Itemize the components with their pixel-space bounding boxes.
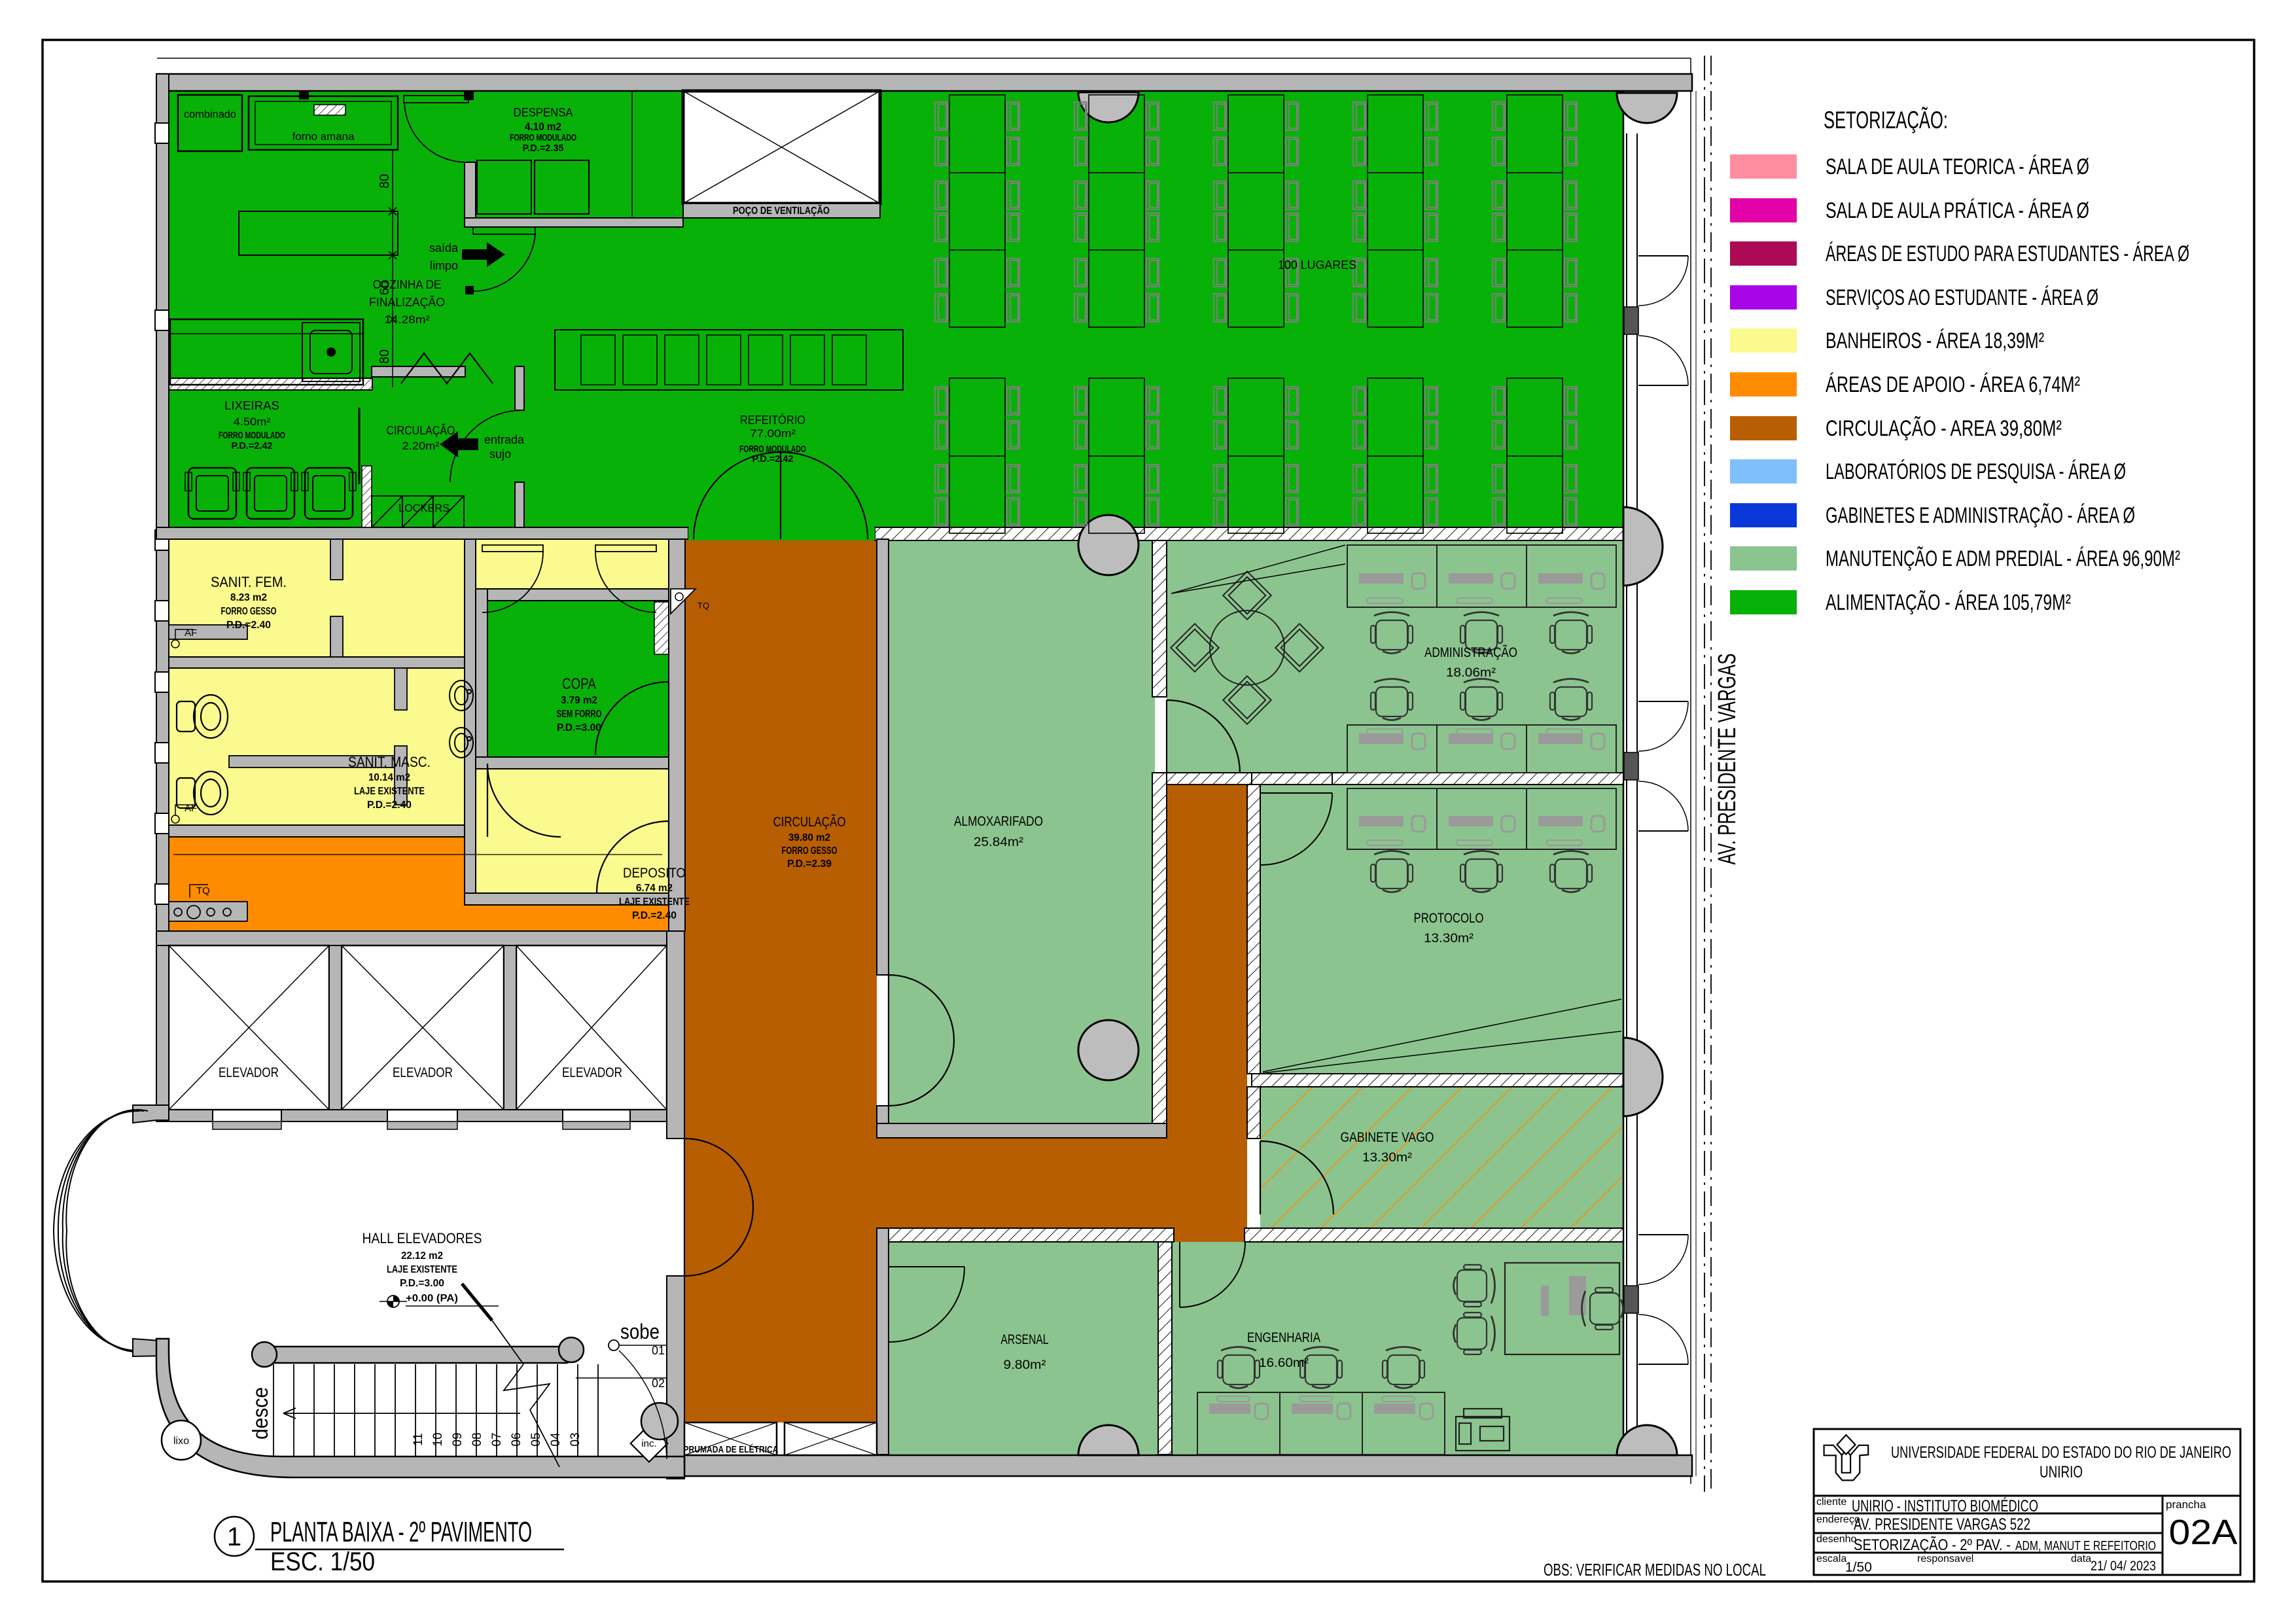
svg-text:SALA DE AULA TEORICA - ÁREA Ø: SALA DE AULA TEORICA - ÁREA Ø <box>1826 154 2089 179</box>
svg-text:10: 10 <box>431 1432 445 1446</box>
svg-text:inc.: inc. <box>641 1438 656 1449</box>
svg-text:ESC. 1/50: ESC. 1/50 <box>270 1547 375 1576</box>
svg-text:ALIMENTAÇÃO - ÁREA 105,79M²: ALIMENTAÇÃO - ÁREA 105,79M² <box>1826 590 2071 615</box>
svg-text:P.D.=3.00: P.D.=3.00 <box>400 1278 444 1289</box>
svg-text:80: 80 <box>378 349 392 364</box>
svg-text:80: 80 <box>378 174 392 188</box>
svg-text:13.30m²: 13.30m² <box>1424 932 1474 945</box>
svg-text:COZINHA DE: COZINHA DE <box>373 278 442 291</box>
svg-text:OBS: VERIFICAR MEDIDAS NO LOCA: OBS: VERIFICAR MEDIDAS NO LOCAL <box>1544 1560 1766 1580</box>
svg-text:lixo: lixo <box>173 1436 189 1447</box>
svg-text:SEM FORRO: SEM FORRO <box>557 709 602 720</box>
svg-text:77.00m²: 77.00m² <box>750 427 796 440</box>
svg-text:4.50m²: 4.50m² <box>234 415 271 428</box>
svg-text:LABORATÓRIOS DE PESQUISA - ÁRE: LABORATÓRIOS DE PESQUISA - ÁREA Ø <box>1826 459 2126 484</box>
svg-text:ADMINISTRAÇÃO: ADMINISTRAÇÃO <box>1424 644 1517 660</box>
svg-text:02A: 02A <box>2169 1513 2238 1552</box>
svg-text:SETORIZAÇÃO:: SETORIZAÇÃO: <box>1824 107 1948 133</box>
svg-text:P.D.=2.42: P.D.=2.42 <box>232 440 273 451</box>
svg-text:FORRO MODULADO: FORRO MODULADO <box>510 132 576 143</box>
svg-text:FORRO MODULADO: FORRO MODULADO <box>219 430 285 441</box>
svg-text:ELEVADOR: ELEVADOR <box>219 1065 279 1080</box>
svg-text:UNIVERSIDADE FEDERAL DO EST: UNIVERSIDADE FEDERAL DO ESTADO DO RIO DE… <box>1891 1443 2231 1462</box>
svg-text:10.14 m2: 10.14 m2 <box>368 772 410 783</box>
svg-text:HALL ELEVADORES: HALL ELEVADORES <box>362 1230 482 1246</box>
svg-text:CIRCULAÇÃO: CIRCULAÇÃO <box>773 814 846 830</box>
svg-text:LOCKERS: LOCKERS <box>398 502 450 514</box>
svg-text:desce: desce <box>248 1387 272 1439</box>
svg-text:ADM, MANUT E REFEITORIO: ADM, MANUT E REFEITORIO <box>2015 1539 2156 1553</box>
svg-text:SANIT. FEM.: SANIT. FEM. <box>211 574 287 590</box>
svg-text:ELEVADOR: ELEVADOR <box>562 1065 622 1080</box>
svg-text:P.D.=3.00: P.D.=3.00 <box>557 722 601 733</box>
svg-text:9.80m²: 9.80m² <box>1004 1358 1046 1372</box>
svg-text:SALA DE AULA PRÁTICA - ÁREA Ø: SALA DE AULA PRÁTICA - ÁREA Ø <box>1826 198 2089 223</box>
svg-text:responsavel: responsavel <box>1917 1553 1973 1564</box>
svg-text:6.74 m2: 6.74 m2 <box>636 883 673 894</box>
svg-text:P.D.=2.40: P.D.=2.40 <box>226 620 271 631</box>
svg-text:07: 07 <box>490 1432 504 1446</box>
svg-text:03: 03 <box>569 1432 582 1446</box>
svg-text:AF: AF <box>185 803 197 814</box>
svg-text:25.84m²: 25.84m² <box>974 836 1023 849</box>
svg-text:LAJE EXISTENTE: LAJE EXISTENTE <box>354 786 425 797</box>
svg-text:SERVIÇOS AO ESTUDANTE - ÁREA Ø: SERVIÇOS AO ESTUDANTE - ÁREA Ø <box>1826 285 2098 310</box>
svg-text:ENGENHARIA: ENGENHARIA <box>1247 1330 1320 1345</box>
svg-text:sobe: sobe <box>620 1320 660 1343</box>
svg-text:P.D.=2.40: P.D.=2.40 <box>367 800 412 811</box>
svg-text:11: 11 <box>412 1433 425 1446</box>
svg-text:cliente: cliente <box>1816 1496 1846 1508</box>
svg-text:AV. PRESIDENTE VARGAS 522: AV. PRESIDENTE VARGAS 522 <box>1854 1515 2030 1534</box>
svg-text:LAJE EXISTENTE: LAJE EXISTENTE <box>619 896 690 908</box>
svg-text:1/50: 1/50 <box>1845 1560 1872 1575</box>
svg-text:+0.00 (PA): +0.00 (PA) <box>406 1293 458 1304</box>
svg-text:1: 1 <box>227 1523 241 1551</box>
svg-text:100 LUGARES: 100 LUGARES <box>1278 258 1356 272</box>
svg-text:LAJE EXISTENTE: LAJE EXISTENTE <box>387 1264 457 1275</box>
svg-text:21/ 04/ 2023: 21/ 04/ 2023 <box>2091 1559 2156 1574</box>
svg-text:13.30m²: 13.30m² <box>1362 1151 1412 1165</box>
svg-text:prancha: prancha <box>2166 1498 2206 1511</box>
svg-text:CIRCULAÇÃO: CIRCULAÇÃO <box>387 423 455 437</box>
svg-text:05: 05 <box>529 1432 543 1446</box>
svg-text:3.79 m2: 3.79 m2 <box>561 695 597 706</box>
svg-text:limpo: limpo <box>430 259 458 272</box>
svg-text:MANUTENÇÃO E ADM PREDIAL - ÁRE: MANUTENÇÃO E ADM PREDIAL - ÁREA 96,90M² <box>1826 546 2180 571</box>
svg-text:8.23 m2: 8.23 m2 <box>230 592 267 603</box>
svg-text:4.10 m2: 4.10 m2 <box>525 120 561 133</box>
svg-text:16.60m²: 16.60m² <box>1259 1356 1309 1370</box>
svg-text:P.D.=2.39: P.D.=2.39 <box>787 858 832 870</box>
svg-text:FORRO GESSO: FORRO GESSO <box>782 845 838 856</box>
svg-text:P.D.=2.42: P.D.=2.42 <box>752 453 794 465</box>
svg-text:2.20m²: 2.20m² <box>402 440 440 452</box>
svg-text:DESPENSA: DESPENSA <box>514 106 573 119</box>
svg-text:POÇO DE VENTILAÇÃO: POÇO DE VENTILAÇÃO <box>733 203 830 217</box>
svg-text:P.D.=2.35: P.D.=2.35 <box>523 143 564 154</box>
svg-text:data: data <box>2071 1553 2091 1564</box>
svg-text:UNIRIO: UNIRIO <box>2040 1463 2083 1481</box>
svg-text:02: 02 <box>652 1377 665 1390</box>
svg-text:TQ: TQ <box>196 885 210 896</box>
svg-text:entrada: entrada <box>484 433 525 446</box>
svg-text:PLANTA BAIXA - 2º PAVIMENTO: PLANTA BAIXA - 2º PAVIMENTO <box>270 1516 532 1548</box>
svg-text:forno amana: forno amana <box>292 130 355 143</box>
svg-text:AV. PRESIDENTE VARGAS: AV. PRESIDENTE VARGAS <box>1714 654 1741 865</box>
svg-text:01: 01 <box>652 1344 665 1357</box>
svg-text:SANIT. MASC.: SANIT. MASC. <box>348 754 431 770</box>
svg-text:combinado: combinado <box>184 108 236 120</box>
svg-text:PROTOCOLO: PROTOCOLO <box>1414 911 1484 926</box>
svg-text:TQ: TQ <box>698 601 709 610</box>
svg-text:escala: escala <box>1816 1553 1846 1564</box>
svg-text:GABINETES E ADMINISTRAÇÃO - ÁR: GABINETES E ADMINISTRAÇÃO - ÁREA Ø <box>1826 503 2135 528</box>
svg-text:saída: saída <box>429 241 459 255</box>
svg-text:LIXEIRAS: LIXEIRAS <box>224 399 279 412</box>
svg-text:14.28m²: 14.28m² <box>384 313 430 326</box>
svg-text:GABINETE VAGO: GABINETE VAGO <box>1341 1130 1434 1145</box>
svg-text:UNIRIO - INSTITUTO BIOMÉDICO: UNIRIO - INSTITUTO BIOMÉDICO <box>1852 1496 2038 1515</box>
svg-text:PRUMADA DE ELÉTRICA: PRUMADA DE ELÉTRICA <box>684 1444 779 1455</box>
svg-text:CIRCULAÇÃO - AREA 39,80M²: CIRCULAÇÃO - AREA 39,80M² <box>1826 416 2062 441</box>
svg-text:FINALIZAÇÃO: FINALIZAÇÃO <box>369 295 445 309</box>
svg-text:REFEITÓRIO: REFEITÓRIO <box>740 413 805 427</box>
svg-text:04: 04 <box>549 1432 563 1447</box>
svg-text:ELEVADOR: ELEVADOR <box>393 1065 453 1080</box>
svg-text:22.12 m2: 22.12 m2 <box>401 1250 443 1262</box>
svg-text:ARSENAL: ARSENAL <box>1001 1332 1049 1347</box>
svg-text:39.80 m2: 39.80 m2 <box>788 832 830 843</box>
svg-text:FORRO GESSO: FORRO GESSO <box>221 606 277 617</box>
svg-text:06: 06 <box>510 1432 523 1446</box>
svg-text:DEPOSITO: DEPOSITO <box>623 866 686 881</box>
svg-text:desenho: desenho <box>1816 1534 1856 1545</box>
svg-text:18.06m²: 18.06m² <box>1446 666 1496 680</box>
svg-text:09: 09 <box>451 1432 465 1446</box>
svg-text:P.D.=2.40: P.D.=2.40 <box>632 910 677 921</box>
svg-text:ALMOXARIFADO: ALMOXARIFADO <box>954 814 1043 829</box>
svg-text:08: 08 <box>470 1432 484 1446</box>
svg-text:BANHEIROS - ÁREA 18,39M²: BANHEIROS - ÁREA 18,39M² <box>1826 328 2044 353</box>
svg-text:SETORIZAÇÃO - 2º PAV. -: SETORIZAÇÃO - 2º PAV. - <box>1854 1536 2011 1554</box>
svg-text:ÁREAS DE ESTUDO PARA ESTUDANTE: ÁREAS DE ESTUDO PARA ESTUDANTES - ÁREA Ø <box>1826 241 2189 266</box>
svg-text:ÁREAS DE APOIO - ÁREA 6,74M²: ÁREAS DE APOIO - ÁREA 6,74M² <box>1826 372 2080 397</box>
svg-text:COPA: COPA <box>562 675 596 693</box>
svg-text:AF: AF <box>185 627 197 639</box>
svg-text:sujo: sujo <box>489 448 511 461</box>
